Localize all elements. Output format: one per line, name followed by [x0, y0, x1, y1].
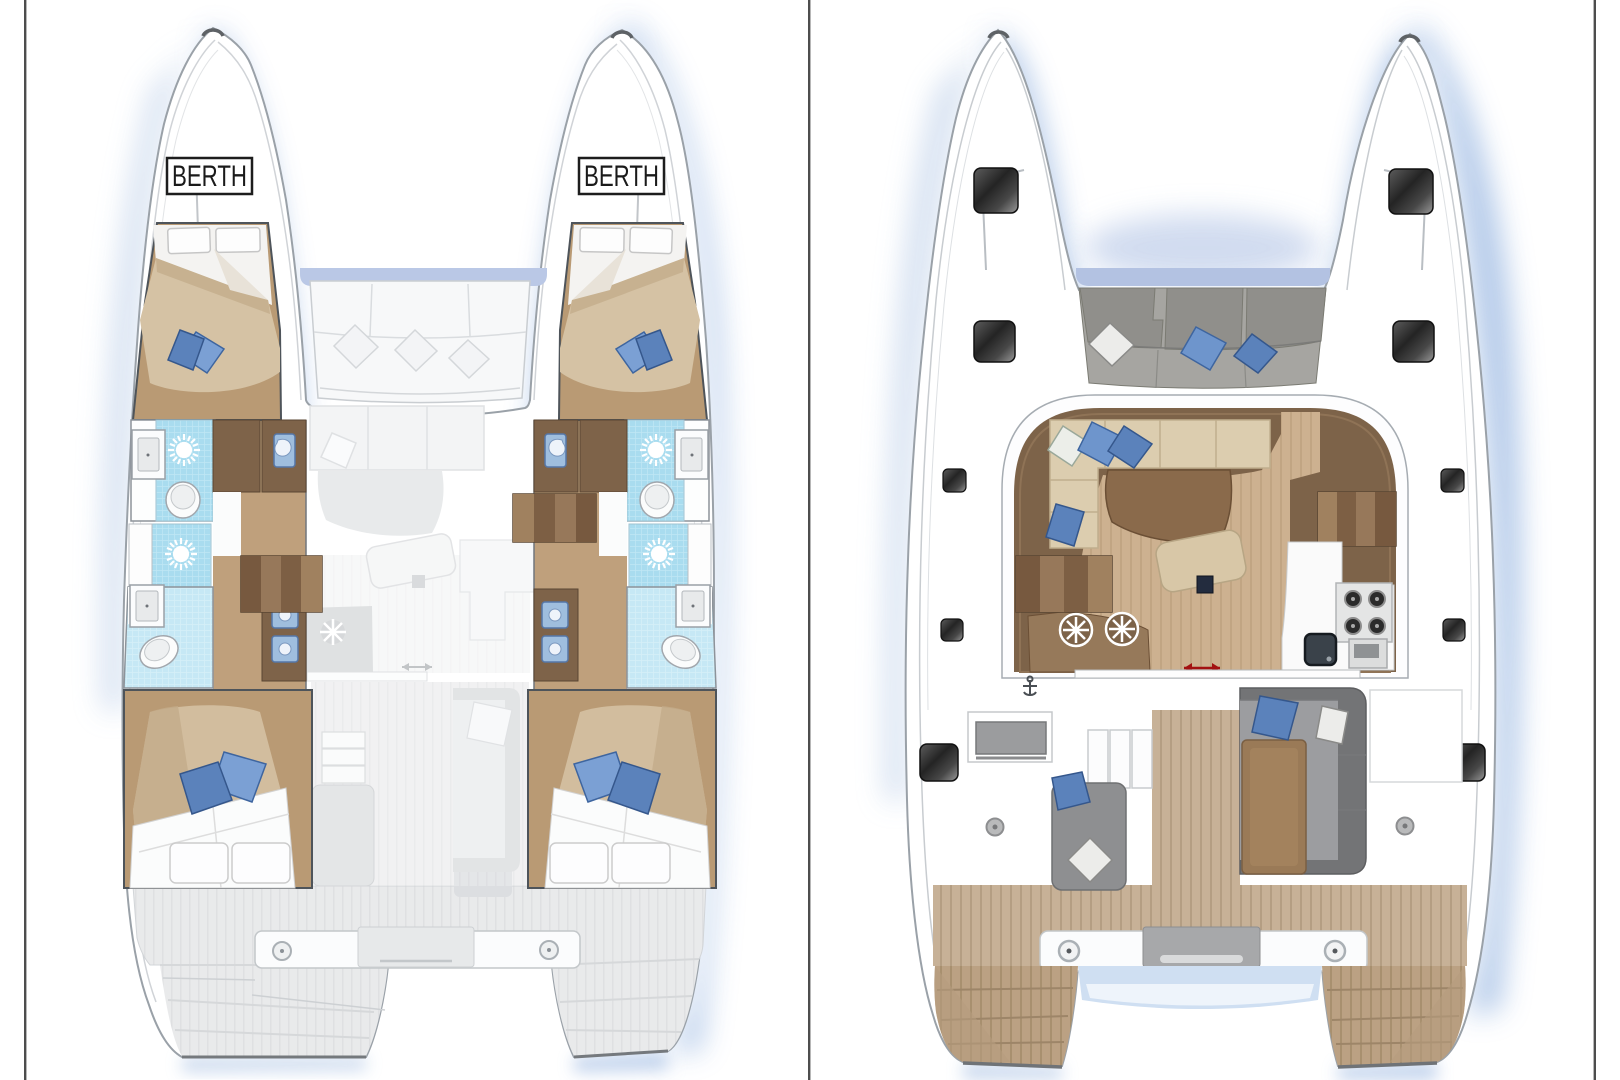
svg-text:BERTH: BERTH	[584, 160, 659, 193]
svg-text:BERTH: BERTH	[172, 160, 247, 193]
